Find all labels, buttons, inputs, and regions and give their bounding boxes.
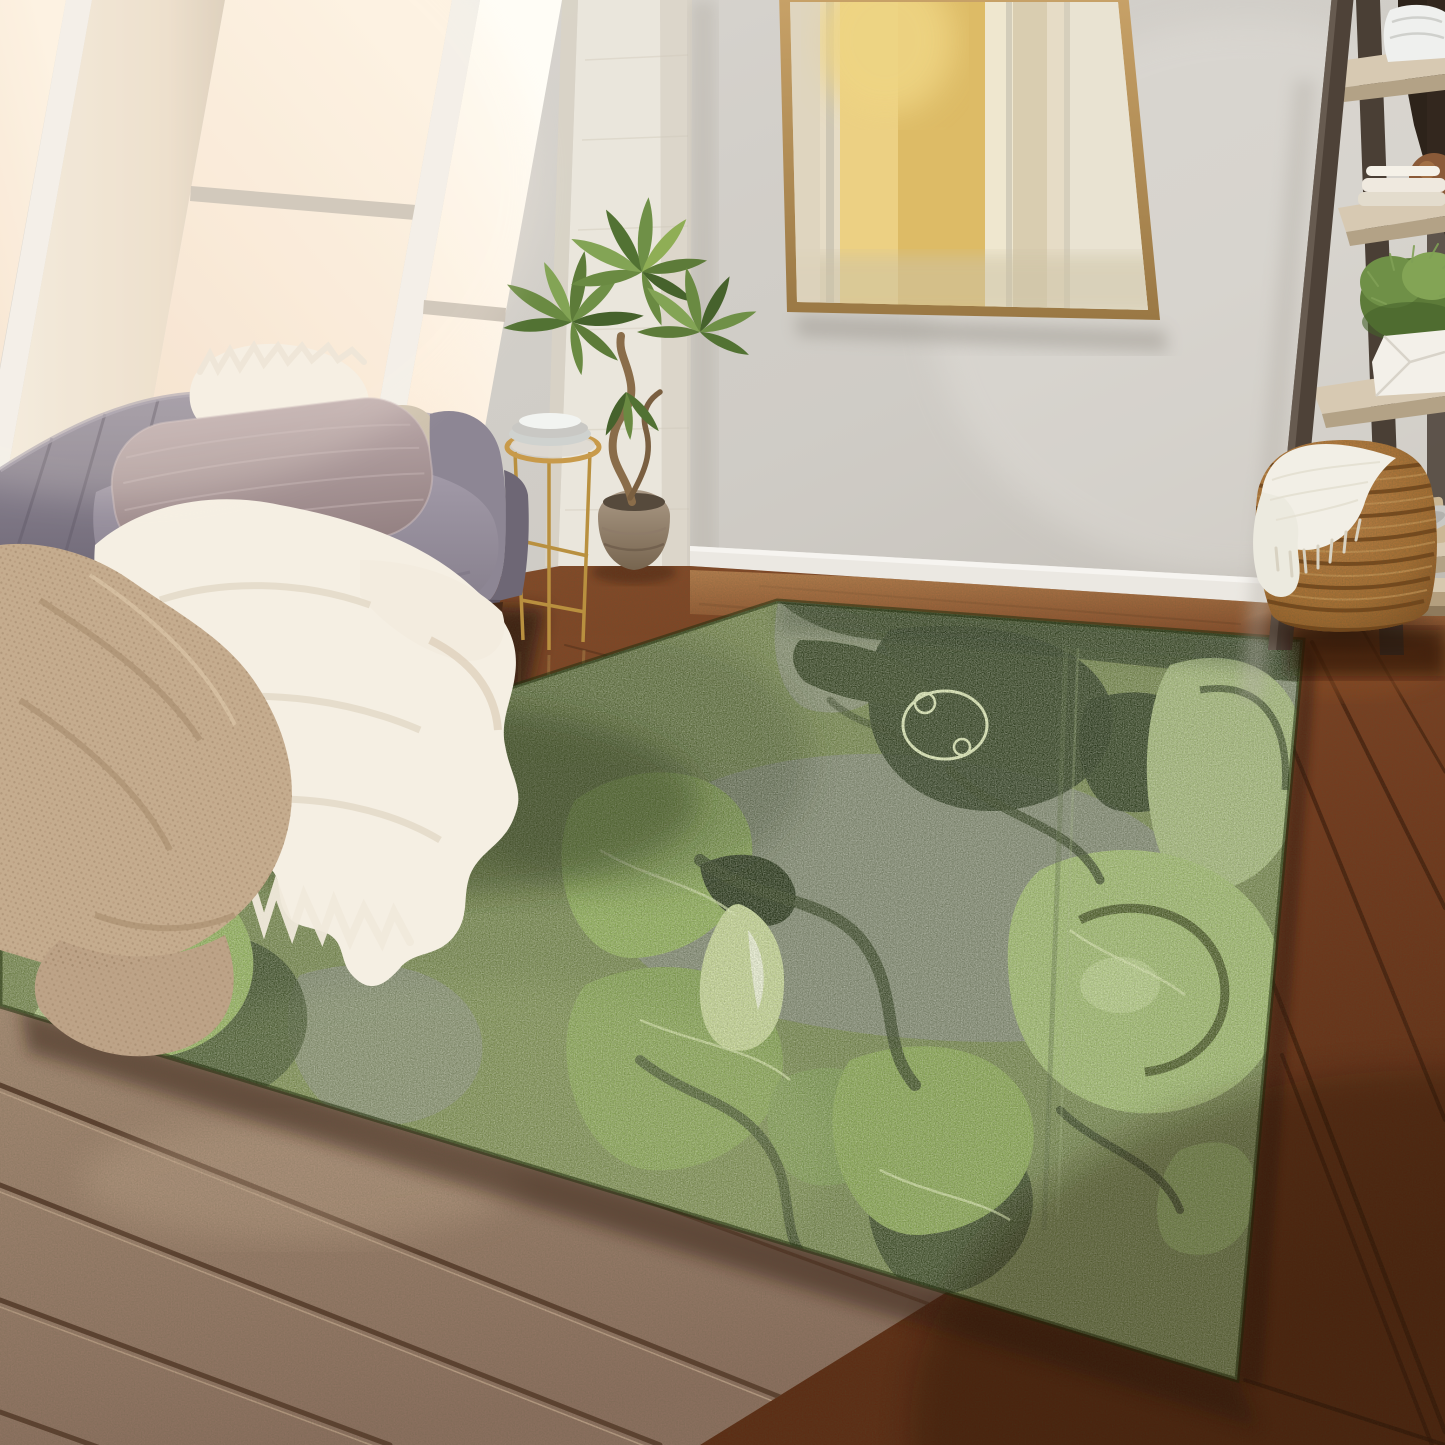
folded-towel — [1366, 166, 1440, 176]
abstract-painting — [779, 0, 1168, 352]
woven-basket-pouf — [1235, 438, 1445, 656]
folded-towel — [1362, 178, 1445, 192]
plate-top — [519, 413, 581, 429]
folded-towel — [1358, 192, 1445, 206]
living-room-photo — [0, 0, 1445, 1445]
